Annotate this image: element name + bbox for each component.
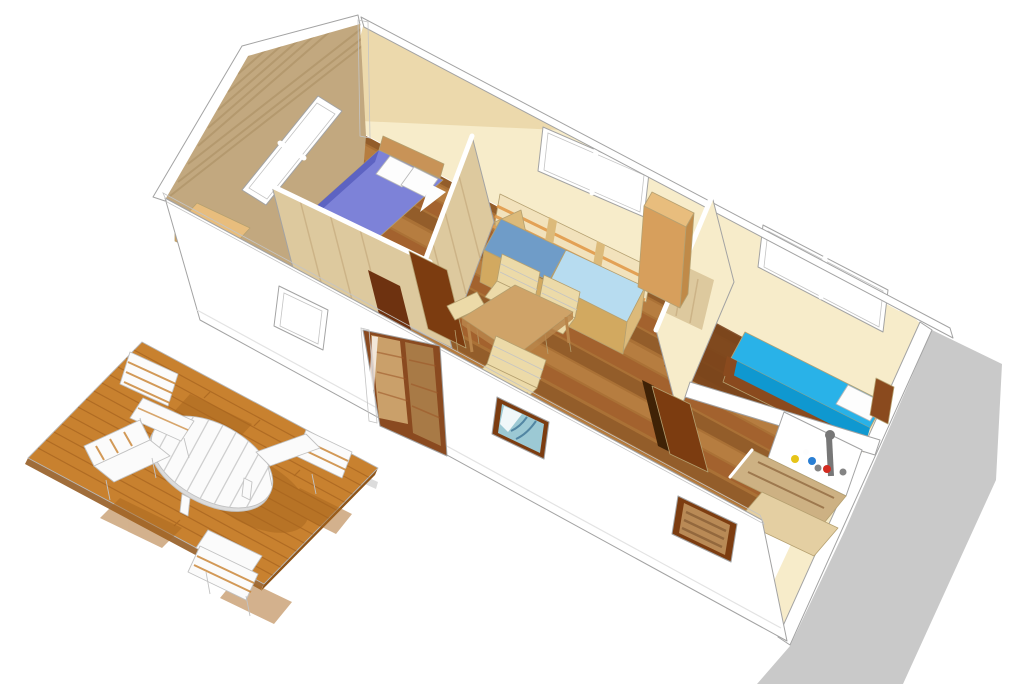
- cabinet: [638, 192, 694, 308]
- deck-table-leg: [180, 494, 190, 516]
- floorplan-render: [0, 0, 1024, 684]
- deck-table-leg: [242, 478, 252, 500]
- scene-svg: [0, 0, 1024, 684]
